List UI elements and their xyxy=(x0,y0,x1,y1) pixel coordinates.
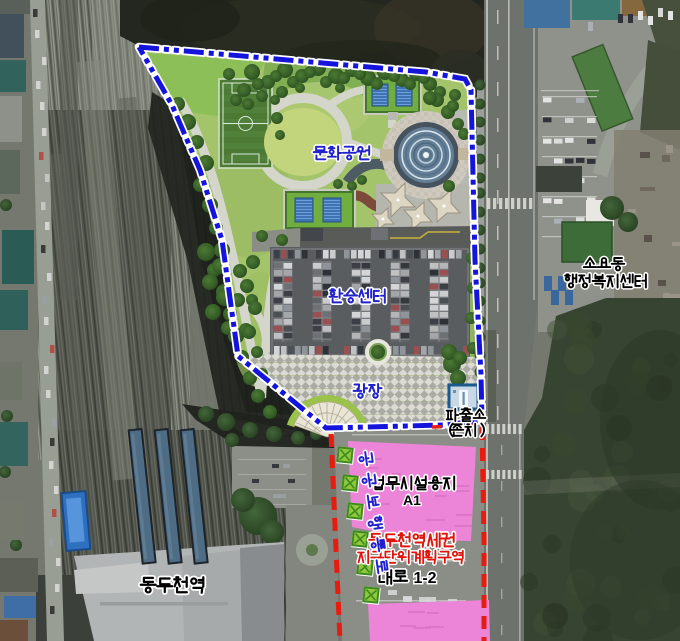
svg-text:1-2: 1-2 xyxy=(413,570,436,587)
svg-text:A1: A1 xyxy=(403,492,421,508)
